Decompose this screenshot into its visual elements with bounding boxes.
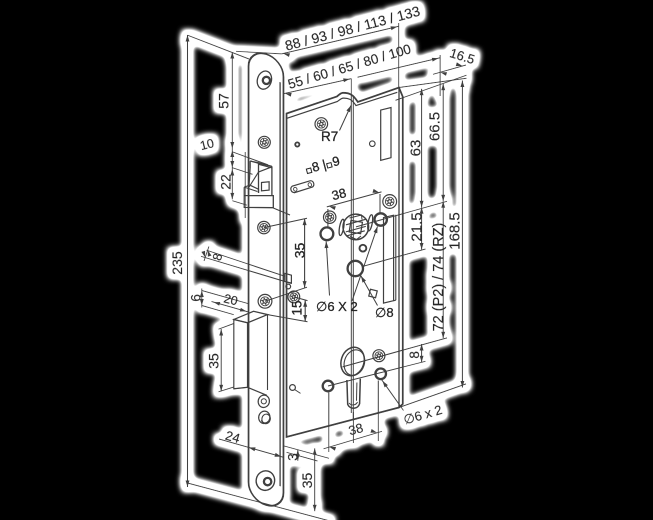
svg-text:168.5: 168.5 <box>447 212 464 250</box>
svg-text:3: 3 <box>285 453 300 461</box>
svg-text:22: 22 <box>217 174 233 190</box>
svg-text:72 (P2) / 74 (RZ): 72 (P2) / 74 (RZ) <box>431 223 447 332</box>
svg-text:35: 35 <box>206 353 222 369</box>
svg-text:35: 35 <box>299 473 315 489</box>
svg-text:15: 15 <box>290 300 305 315</box>
svg-text:21.5: 21.5 <box>408 212 425 241</box>
svg-text:57: 57 <box>216 93 232 109</box>
svg-text:R7: R7 <box>321 129 338 144</box>
svg-text:235: 235 <box>169 251 185 275</box>
svg-text:35: 35 <box>291 243 307 259</box>
svg-text:6: 6 <box>189 294 204 302</box>
svg-text:63: 63 <box>407 140 424 157</box>
svg-text:66.5: 66.5 <box>426 112 443 141</box>
svg-text:∅6 X 2: ∅6 X 2 <box>316 299 358 314</box>
svg-text:∅8: ∅8 <box>375 305 394 320</box>
svg-text:8: 8 <box>407 351 422 359</box>
